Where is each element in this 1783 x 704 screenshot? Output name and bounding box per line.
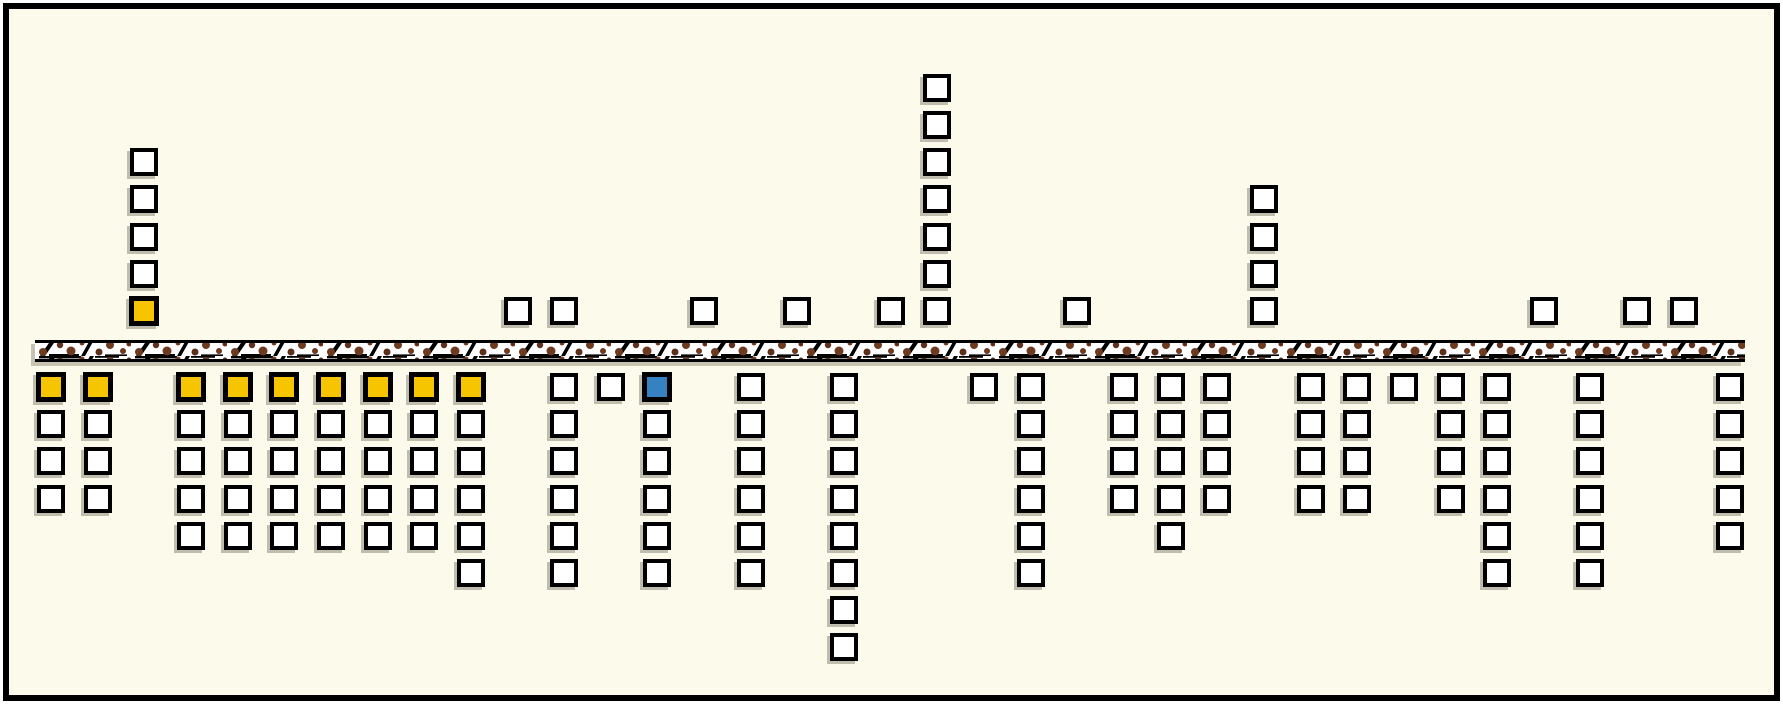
white-crate[interactable] — [410, 410, 438, 438]
white-crate[interactable] — [317, 410, 345, 438]
white-crate[interactable] — [643, 522, 671, 550]
white-crate[interactable] — [84, 410, 112, 438]
white-crate[interactable] — [1017, 410, 1045, 438]
white-crate[interactable] — [737, 447, 765, 475]
white-crate[interactable] — [1716, 522, 1744, 550]
white-crate[interactable] — [783, 297, 811, 325]
white-crate[interactable] — [270, 447, 298, 475]
white-crate[interactable] — [37, 447, 65, 475]
white-crate[interactable] — [970, 373, 998, 401]
white-crate[interactable] — [1343, 373, 1371, 401]
white-crate[interactable] — [270, 485, 298, 513]
game-scene — [0, 0, 1783, 704]
white-crate[interactable] — [830, 559, 858, 587]
white-crate[interactable] — [830, 447, 858, 475]
white-crate[interactable] — [1017, 522, 1045, 550]
white-crate[interactable] — [1157, 447, 1185, 475]
white-crate[interactable] — [177, 410, 205, 438]
white-crate[interactable] — [1576, 410, 1604, 438]
white-crate[interactable] — [923, 297, 951, 325]
white-crate[interactable] — [550, 447, 578, 475]
white-crate[interactable] — [1110, 373, 1138, 401]
white-crate[interactable] — [504, 297, 532, 325]
yellow-crate[interactable] — [456, 372, 486, 402]
white-crate[interactable] — [1203, 485, 1231, 513]
white-crate[interactable] — [923, 185, 951, 213]
white-crate[interactable] — [737, 485, 765, 513]
yellow-crate[interactable] — [363, 372, 393, 402]
white-crate[interactable] — [1437, 485, 1465, 513]
white-crate[interactable] — [317, 485, 345, 513]
white-crate[interactable] — [1203, 410, 1231, 438]
white-crate[interactable] — [597, 373, 625, 401]
white-crate[interactable] — [410, 447, 438, 475]
white-crate[interactable] — [1017, 559, 1045, 587]
white-crate[interactable] — [1483, 522, 1511, 550]
white-crate[interactable] — [224, 410, 252, 438]
white-crate[interactable] — [1343, 410, 1371, 438]
white-crate[interactable] — [457, 410, 485, 438]
white-crate[interactable] — [550, 485, 578, 513]
white-crate[interactable] — [1576, 447, 1604, 475]
white-crate[interactable] — [830, 522, 858, 550]
white-crate[interactable] — [317, 447, 345, 475]
white-crate[interactable] — [1343, 447, 1371, 475]
white-crate[interactable] — [1576, 373, 1604, 401]
white-crate[interactable] — [1017, 373, 1045, 401]
white-crate[interactable] — [224, 447, 252, 475]
white-crate[interactable] — [84, 447, 112, 475]
white-crate[interactable] — [830, 373, 858, 401]
white-crate[interactable] — [1250, 260, 1278, 288]
white-crate[interactable] — [457, 522, 485, 550]
white-crate[interactable] — [1390, 373, 1418, 401]
white-crate[interactable] — [550, 559, 578, 587]
white-crate[interactable] — [690, 297, 718, 325]
white-crate[interactable] — [177, 447, 205, 475]
white-crate[interactable] — [923, 260, 951, 288]
white-crate[interactable] — [737, 373, 765, 401]
white-crate[interactable] — [1063, 297, 1091, 325]
white-crate[interactable] — [457, 559, 485, 587]
white-crate[interactable] — [550, 410, 578, 438]
white-crate[interactable] — [1623, 297, 1651, 325]
white-crate[interactable] — [364, 410, 392, 438]
yellow-crate[interactable] — [409, 372, 439, 402]
white-crate[interactable] — [1530, 297, 1558, 325]
white-crate[interactable] — [1297, 410, 1325, 438]
white-crate[interactable] — [1297, 485, 1325, 513]
white-crate[interactable] — [643, 559, 671, 587]
white-crate[interactable] — [1670, 297, 1698, 325]
white-crate[interactable] — [737, 559, 765, 587]
white-crate[interactable] — [923, 223, 951, 251]
white-crate[interactable] — [923, 111, 951, 139]
white-crate[interactable] — [1437, 373, 1465, 401]
white-crate[interactable] — [364, 485, 392, 513]
white-crate[interactable] — [84, 485, 112, 513]
white-crate[interactable] — [830, 485, 858, 513]
white-crate[interactable] — [37, 410, 65, 438]
white-crate[interactable] — [1157, 373, 1185, 401]
white-crate[interactable] — [1343, 485, 1371, 513]
yellow-crate[interactable] — [129, 296, 159, 326]
white-crate[interactable] — [1576, 485, 1604, 513]
white-crate[interactable] — [270, 522, 298, 550]
white-crate[interactable] — [1110, 485, 1138, 513]
white-crate[interactable] — [643, 410, 671, 438]
white-crate[interactable] — [130, 223, 158, 251]
white-crate[interactable] — [643, 485, 671, 513]
white-crate[interactable] — [1250, 223, 1278, 251]
white-crate[interactable] — [1483, 410, 1511, 438]
white-crate[interactable] — [130, 185, 158, 213]
white-crate[interactable] — [737, 522, 765, 550]
white-crate[interactable] — [224, 485, 252, 513]
white-crate[interactable] — [1576, 559, 1604, 587]
white-crate[interactable] — [1297, 447, 1325, 475]
white-crate[interactable] — [177, 522, 205, 550]
white-crate[interactable] — [410, 485, 438, 513]
white-crate[interactable] — [1483, 447, 1511, 475]
white-crate[interactable] — [1157, 485, 1185, 513]
white-crate[interactable] — [1017, 447, 1045, 475]
dirt-road-texture — [35, 340, 1745, 362]
white-crate[interactable] — [364, 522, 392, 550]
yellow-crate[interactable] — [83, 372, 113, 402]
white-crate[interactable] — [457, 485, 485, 513]
white-crate[interactable] — [1203, 447, 1231, 475]
white-crate[interactable] — [1250, 185, 1278, 213]
white-crate[interactable] — [1017, 485, 1045, 513]
white-crate[interactable] — [364, 447, 392, 475]
white-crate[interactable] — [317, 522, 345, 550]
white-crate[interactable] — [1203, 373, 1231, 401]
white-crate[interactable] — [550, 297, 578, 325]
white-crate[interactable] — [457, 447, 485, 475]
white-crate[interactable] — [1297, 373, 1325, 401]
white-crate[interactable] — [643, 447, 671, 475]
yellow-crate[interactable] — [316, 372, 346, 402]
white-crate[interactable] — [270, 410, 298, 438]
white-crate[interactable] — [1437, 447, 1465, 475]
white-crate[interactable] — [830, 410, 858, 438]
dirt-road — [35, 340, 1745, 362]
white-crate[interactable] — [1110, 410, 1138, 438]
white-crate[interactable] — [410, 522, 438, 550]
white-crate[interactable] — [1157, 410, 1185, 438]
white-crate[interactable] — [130, 148, 158, 176]
white-crate[interactable] — [1716, 485, 1744, 513]
yellow-crate[interactable] — [176, 372, 206, 402]
white-crate[interactable] — [1483, 559, 1511, 587]
blue-crate[interactable] — [642, 372, 672, 402]
white-crate[interactable] — [737, 410, 765, 438]
white-crate[interactable] — [224, 522, 252, 550]
white-crate[interactable] — [1716, 410, 1744, 438]
white-crate[interactable] — [177, 485, 205, 513]
white-crate[interactable] — [923, 148, 951, 176]
white-crate[interactable] — [830, 596, 858, 624]
white-crate[interactable] — [1250, 297, 1278, 325]
white-crate[interactable] — [550, 373, 578, 401]
white-crate[interactable] — [923, 74, 951, 102]
white-crate[interactable] — [130, 260, 158, 288]
white-crate[interactable] — [1576, 522, 1604, 550]
white-crate[interactable] — [1110, 447, 1138, 475]
yellow-crate[interactable] — [269, 372, 299, 402]
white-crate[interactable] — [1437, 410, 1465, 438]
white-crate[interactable] — [877, 297, 905, 325]
white-crate[interactable] — [830, 633, 858, 661]
white-crate[interactable] — [1483, 485, 1511, 513]
yellow-crate[interactable] — [36, 372, 66, 402]
yellow-crate[interactable] — [223, 372, 253, 402]
white-crate[interactable] — [1483, 373, 1511, 401]
white-crate[interactable] — [37, 485, 65, 513]
white-crate[interactable] — [1157, 522, 1185, 550]
white-crate[interactable] — [1716, 373, 1744, 401]
white-crate[interactable] — [550, 522, 578, 550]
white-crate[interactable] — [1716, 447, 1744, 475]
